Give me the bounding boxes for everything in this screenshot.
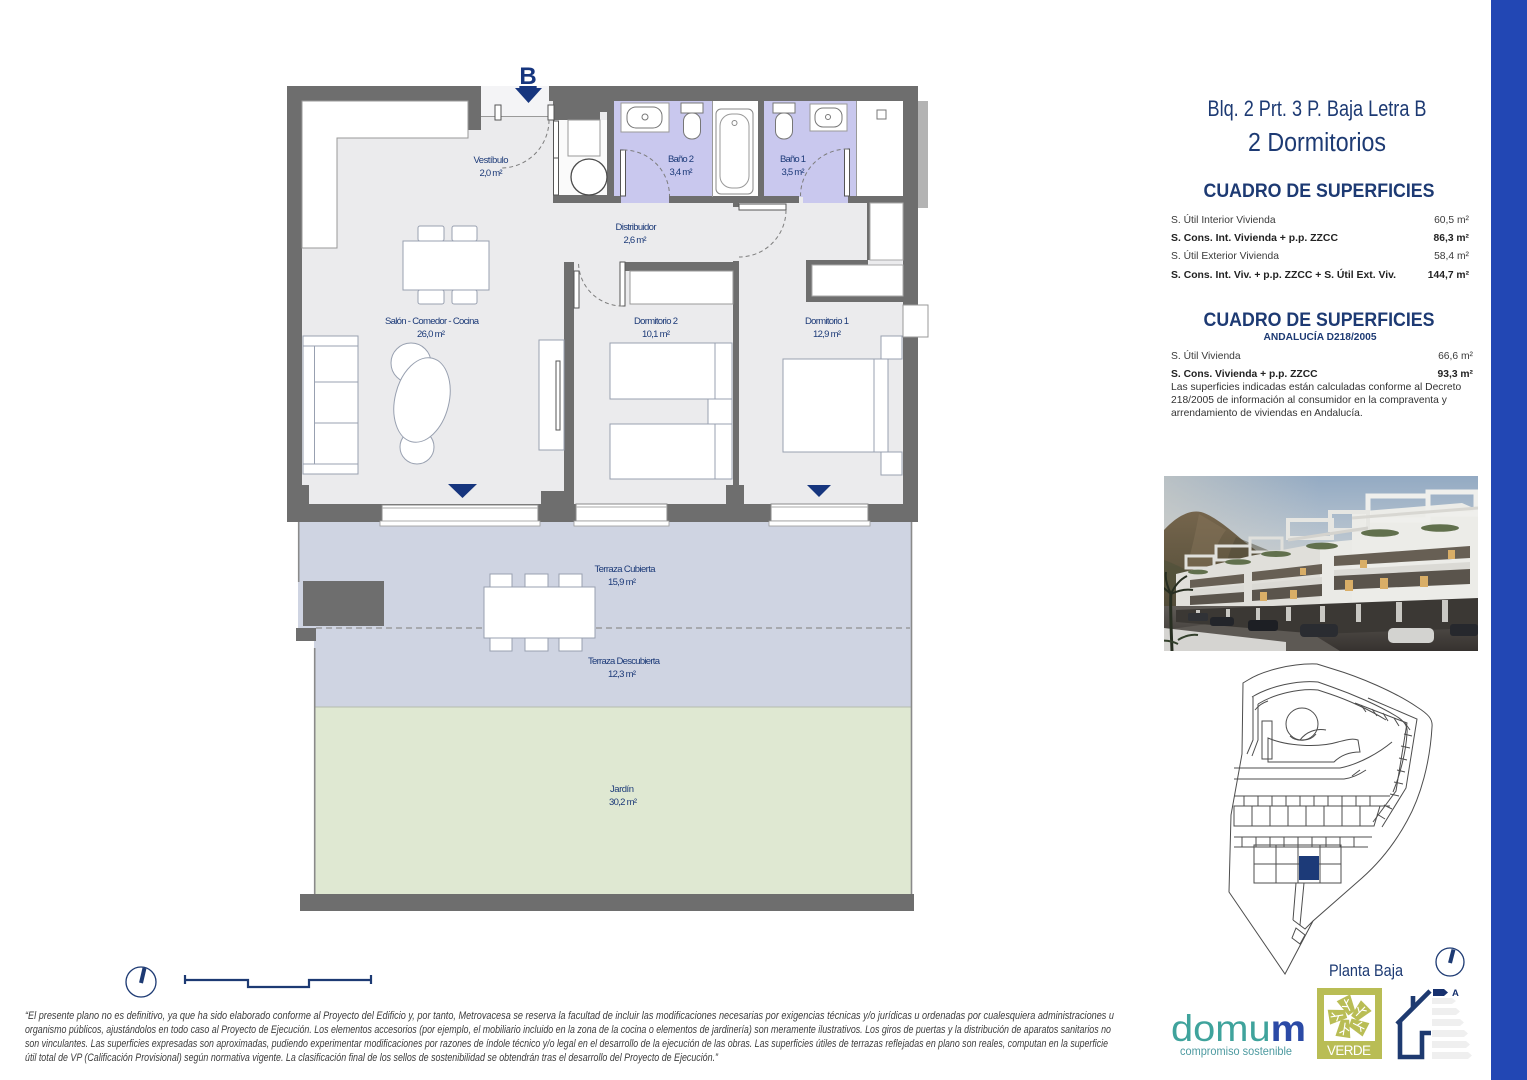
svg-text:2 Dormitorios: 2 Dormitorios: [1248, 129, 1386, 157]
svg-text:12,9 m²: 12,9 m²: [813, 329, 841, 340]
svg-text:S. Útil Interior Vivienda: S. Útil Interior Vivienda: [1171, 213, 1276, 226]
svg-text:60,5 m²: 60,5 m²: [1434, 215, 1469, 226]
svg-text:10,1 m²: 10,1 m²: [642, 329, 670, 340]
svg-text:arrendamiento de viviendas en: arrendamiento de viviendas en Andalucía.: [1171, 408, 1363, 419]
svg-text:Baño 2: Baño 2: [668, 154, 694, 165]
svg-text:12,3 m²: 12,3 m²: [608, 669, 636, 680]
svg-text:Vestíbulo: Vestíbulo: [474, 155, 509, 166]
svg-text:útil total de VP (Calificación: útil total de VP (Calificación Provision…: [25, 1052, 718, 1064]
svg-text:Dormitorio 1: Dormitorio 1: [805, 316, 849, 327]
svg-text:Blq. 2 Prt. 3 P. Baja Letra B: Blq. 2 Prt. 3 P. Baja Letra B: [1208, 96, 1427, 121]
svg-text:organismo públicos, ajustándol: organismo públicos, ajustándolos en todo…: [25, 1024, 1111, 1036]
svg-text:Terraza Descubierta: Terraza Descubierta: [588, 656, 661, 667]
svg-text:CUADRO DE SUPERFICIES: CUADRO DE SUPERFICIES: [1204, 310, 1435, 331]
svg-text:B: B: [519, 63, 536, 90]
svg-text:15,9 m²: 15,9 m²: [608, 577, 636, 588]
svg-text:30,2 m²: 30,2 m²: [609, 797, 637, 808]
svg-text:Jardín: Jardín: [610, 784, 634, 795]
svg-text:S. Cons. Vivienda + p.p. ZZCC: S. Cons. Vivienda + p.p. ZZCC: [1171, 369, 1318, 380]
svg-text:144,7 m²: 144,7 m²: [1428, 270, 1470, 281]
svg-text:26,0 m²: 26,0 m²: [417, 329, 445, 340]
svg-text:2,6 m²: 2,6 m²: [624, 235, 647, 246]
svg-text:“El presente plano no es defin: “El presente plano no es definitivo, ya …: [25, 1010, 1114, 1022]
svg-text:66,6 m²: 66,6 m²: [1438, 351, 1473, 362]
svg-text:2,0 m²: 2,0 m²: [480, 168, 503, 179]
svg-text:son vinculantes. Las superfici: son vinculantes. Las superficies expresa…: [25, 1038, 1108, 1050]
svg-text:Terraza Cubierta: Terraza Cubierta: [595, 564, 657, 575]
svg-text:A: A: [1452, 988, 1459, 999]
svg-text:VERDE: VERDE: [1327, 1043, 1371, 1058]
svg-text:S. Cons. Int. Viv. + p.p. ZZCC: S. Cons. Int. Viv. + p.p. ZZCC + S. Útil…: [1171, 268, 1396, 281]
svg-text:compromiso sostenible: compromiso sostenible: [1180, 1044, 1292, 1058]
svg-text:Baño 1: Baño 1: [780, 154, 806, 165]
svg-text:Dormitorio 2: Dormitorio 2: [634, 316, 678, 327]
svg-text:93,3 m²: 93,3 m²: [1438, 369, 1474, 380]
svg-text:S. Útil Vivienda: S. Útil Vivienda: [1171, 349, 1241, 362]
svg-text:S. Útil Exterior Vivienda: S. Útil Exterior Vivienda: [1171, 249, 1279, 262]
svg-text:CUADRO DE SUPERFICIES: CUADRO DE SUPERFICIES: [1204, 181, 1435, 202]
svg-text:86,3 m²: 86,3 m²: [1434, 233, 1470, 244]
svg-text:218/2005 de información al con: 218/2005 de información al consumidor en…: [1171, 395, 1448, 406]
svg-text:Las superficies indicadas está: Las superficies indicadas están calculad…: [1171, 382, 1461, 393]
svg-text:S. Cons. Int. Vivienda + p.p.: S. Cons. Int. Vivienda + p.p. ZZCC: [1171, 233, 1339, 244]
svg-text:58,4 m²: 58,4 m²: [1434, 251, 1469, 262]
svg-text:Planta Baja: Planta Baja: [1329, 962, 1404, 980]
svg-text:domum: domum: [1171, 1008, 1306, 1049]
svg-text:Salón - Comedor - Cocina: Salón - Comedor - Cocina: [385, 316, 480, 327]
svg-text:3,4 m²: 3,4 m²: [670, 167, 693, 178]
svg-text:ANDALUCÍA D218/2005: ANDALUCÍA D218/2005: [1264, 330, 1377, 343]
svg-text:Distribuidor: Distribuidor: [616, 222, 657, 233]
svg-text:3,5 m²: 3,5 m²: [782, 167, 805, 178]
